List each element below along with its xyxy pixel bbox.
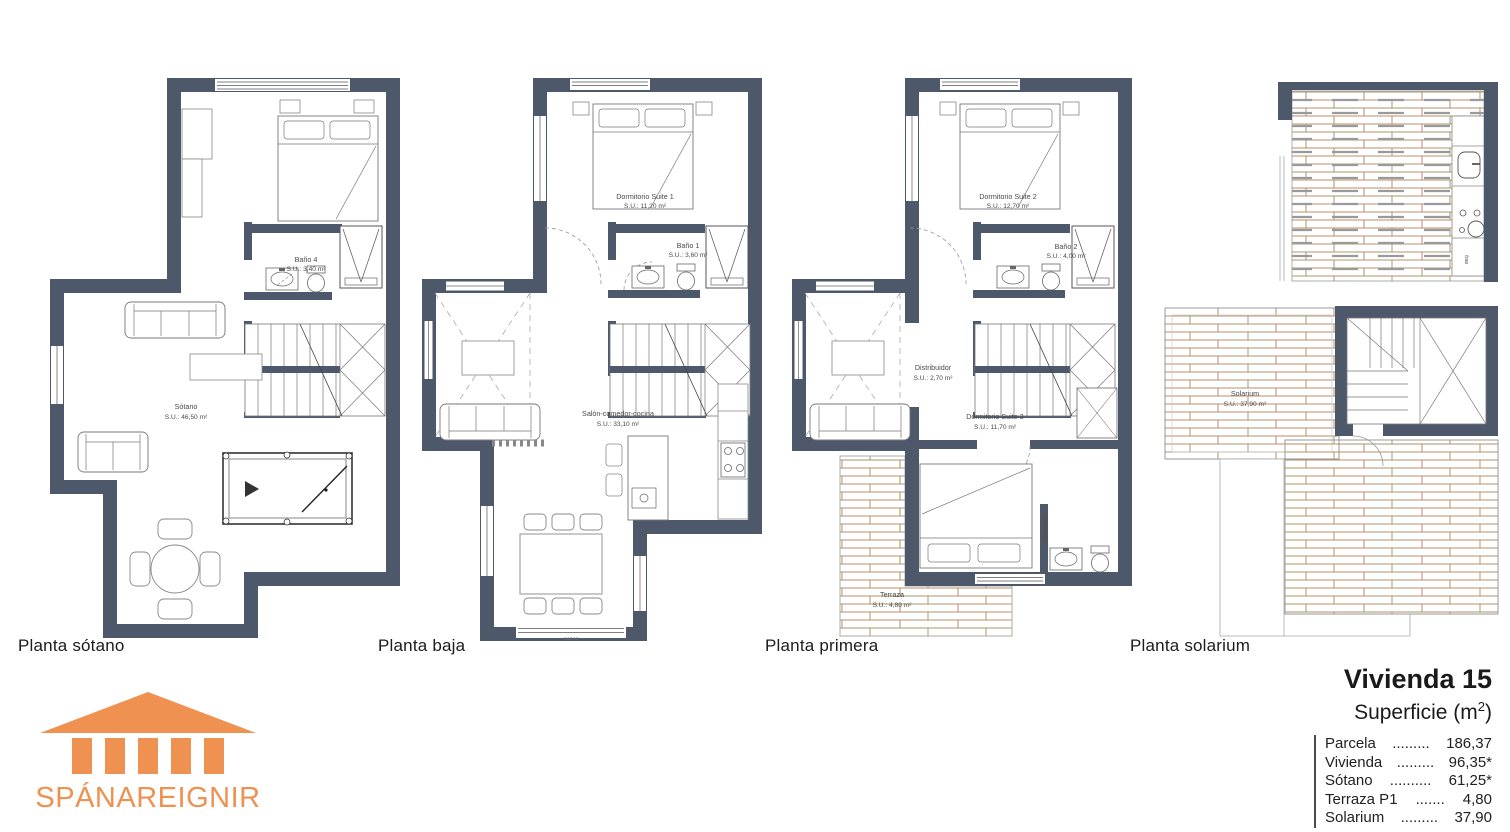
floorplan-primera-drawing: Dormitorio Suite 2 S.U.: 12,70 m² Baño 2… bbox=[788, 71, 1148, 643]
room-area-solarium: S.U.: 37,90 m² bbox=[1224, 401, 1267, 408]
summary-row-terraza: Terraza P1 ....... 4,80 bbox=[1325, 791, 1492, 810]
summary-row-sotano: Sótano .......... 61,25* bbox=[1325, 772, 1492, 791]
room-area-suite3: S.U.: 11,70 m² bbox=[974, 424, 1017, 431]
room-label-solarium: Solarium bbox=[1231, 389, 1259, 398]
caption-planta-baja: Planta baja bbox=[378, 636, 465, 656]
summary-row-solarium: Solarium ......... 37,90 bbox=[1325, 809, 1492, 828]
room-area-bano1: S.U.: 3,60 m² bbox=[669, 252, 709, 259]
sofa bbox=[810, 404, 910, 440]
kitchen-counter bbox=[718, 384, 748, 519]
room-area-suite1: S.U.: 11,20 m² bbox=[624, 203, 667, 210]
summary-list: Parcela ......... 186,37 Vivienda ......… bbox=[1314, 735, 1492, 828]
sofa bbox=[440, 404, 540, 440]
floorplan-baja: 2.2X2.2 bbox=[418, 71, 778, 648]
company-name: SPÁNAREIGNIR bbox=[22, 782, 274, 815]
room-area-sotano: S.U.: 46,50 m² bbox=[165, 414, 208, 421]
kitchen-island bbox=[606, 436, 668, 520]
ensuite-fixtures bbox=[1043, 514, 1109, 572]
room-label-bano4: Baño 4 bbox=[295, 255, 318, 264]
bed bbox=[278, 100, 378, 221]
window-dimension-label: 2.2X2.2 bbox=[564, 636, 579, 641]
summary-row-vivienda: Vivienda ......... 96,35* bbox=[1325, 754, 1492, 773]
bathroom-fixtures bbox=[266, 226, 382, 292]
room-label-sotano: Sótano bbox=[175, 402, 198, 411]
floorplan-solarium-drawing: BBQ Solarium S.U.: 37,90 m² bbox=[1158, 71, 1510, 643]
dining-table bbox=[520, 514, 602, 614]
caption-planta-primera: Planta primera bbox=[765, 636, 878, 656]
floorplan-primera: Dormitorio Suite 2 S.U.: 12,70 m² Baño 2… bbox=[788, 71, 1148, 648]
room-area-bano2: S.U.: 4,00 m² bbox=[1047, 253, 1087, 260]
room-area-suite2: S.U.: 12,70 m² bbox=[987, 203, 1030, 210]
caption-planta-solarium: Planta solarium bbox=[1130, 636, 1250, 656]
room-label-suite3: Dormitorio Suite 3 bbox=[966, 412, 1024, 421]
wardrobe bbox=[1077, 388, 1117, 438]
temple-icon bbox=[22, 692, 274, 774]
summary-row-parcela: Parcela ......... 186,37 bbox=[1325, 735, 1492, 754]
summary-title: Vivienda 15 bbox=[1314, 664, 1492, 694]
floorplan-baja-drawing: 2.2X2.2 bbox=[418, 71, 778, 643]
room-label-suite1: Dormitorio Suite 1 bbox=[616, 192, 674, 201]
room-area-terraza: S.U.: 4,80 m² bbox=[873, 602, 913, 609]
floorplan-solarium: BBQ Solarium S.U.: 37,90 m² bbox=[1158, 71, 1510, 648]
room-label-bano1: Baño 1 bbox=[677, 241, 700, 250]
bbq-label: BBQ bbox=[1464, 254, 1469, 264]
coffee-table bbox=[190, 354, 262, 380]
outdoor-kitchen: BBQ bbox=[1452, 116, 1484, 276]
caption-planta-sotano: Planta sótano bbox=[18, 636, 125, 656]
closet bbox=[182, 109, 212, 217]
surface-summary: Vivienda 15 Superficie (m2) Parcela ....… bbox=[1314, 664, 1492, 828]
room-area-salon: S.U.: 33,10 m² bbox=[597, 421, 640, 428]
bed-suite3 bbox=[920, 464, 1032, 568]
dining-round-table bbox=[130, 519, 220, 619]
stairs bbox=[245, 324, 385, 416]
company-logo: SPÁNAREIGNIR bbox=[22, 692, 274, 815]
room-label-salon: Salón-comedor-cocina bbox=[582, 409, 654, 418]
floorplan-sotano-drawing: Baño 4 S.U.: 3,40 m² Sótano S.U.: 46,50 … bbox=[48, 71, 408, 643]
sofa-small bbox=[78, 432, 148, 472]
summary-subtitle: Superficie (m2) bbox=[1314, 694, 1492, 726]
room-label-suite2: Dormitorio Suite 2 bbox=[979, 192, 1037, 201]
pool-table bbox=[223, 452, 352, 525]
room-label-bano2: Baño 2 bbox=[1055, 242, 1078, 251]
room-label-distribuidor: Distribuidor bbox=[915, 363, 952, 372]
sofa-large bbox=[125, 302, 225, 338]
room-area-distribuidor: S.U.: 2,70 m² bbox=[914, 375, 954, 382]
left-deck bbox=[1165, 308, 1339, 459]
floorplan-sotano: Baño 4 S.U.: 3,40 m² Sótano S.U.: 46,50 … bbox=[48, 71, 408, 648]
room-label-terraza: Terraza bbox=[880, 590, 904, 599]
room-area-bano4: S.U.: 3,40 m² bbox=[287, 266, 327, 273]
lower-deck bbox=[1285, 440, 1498, 614]
